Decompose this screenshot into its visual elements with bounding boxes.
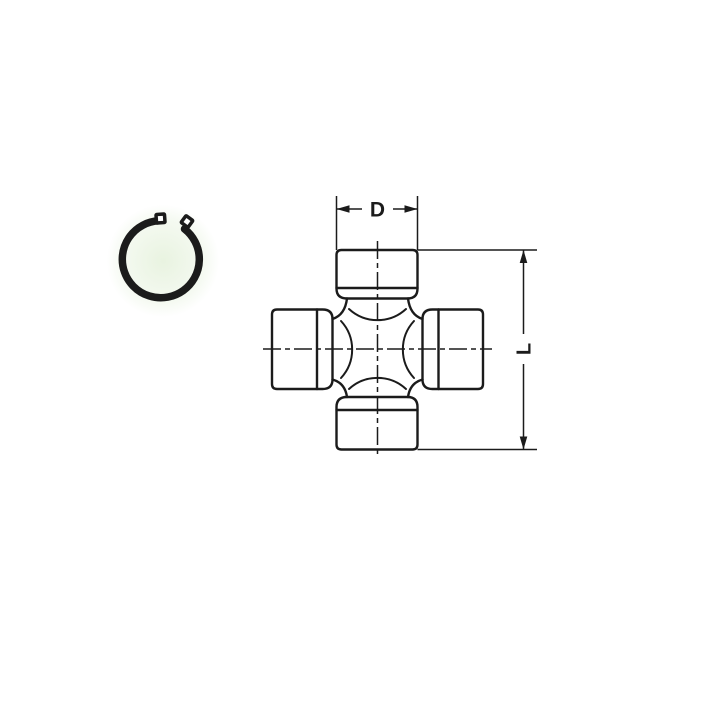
dimension-label-D: D (370, 199, 385, 222)
technical-drawing: D L (0, 0, 720, 720)
product-diagram-image: D L (0, 0, 720, 720)
center-lines (263, 241, 492, 458)
d-arrow-left (337, 205, 350, 213)
dimension-label-L: L (514, 343, 536, 355)
l-arrow-top (520, 250, 528, 263)
universal-joint-cross-icon (263, 241, 492, 458)
l-arrow-bottom (520, 437, 528, 450)
d-arrow-right (405, 205, 418, 213)
snap-ring-icon (122, 212, 199, 298)
snap-ring-body (122, 221, 199, 298)
snap-ring-left-lug (154, 212, 167, 225)
